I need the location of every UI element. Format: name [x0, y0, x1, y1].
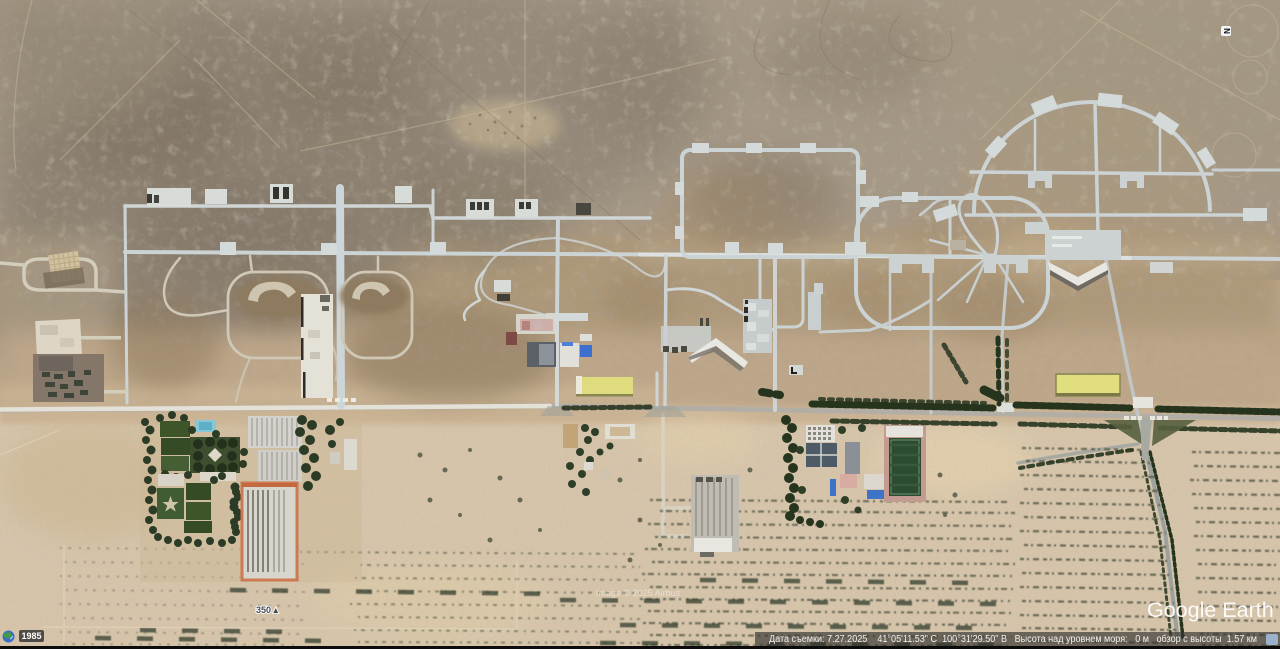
- svg-text:Image © 2025 Airbus: Image © 2025 Airbus: [596, 588, 681, 598]
- svg-text:350 ▴: 350 ▴: [256, 605, 279, 615]
